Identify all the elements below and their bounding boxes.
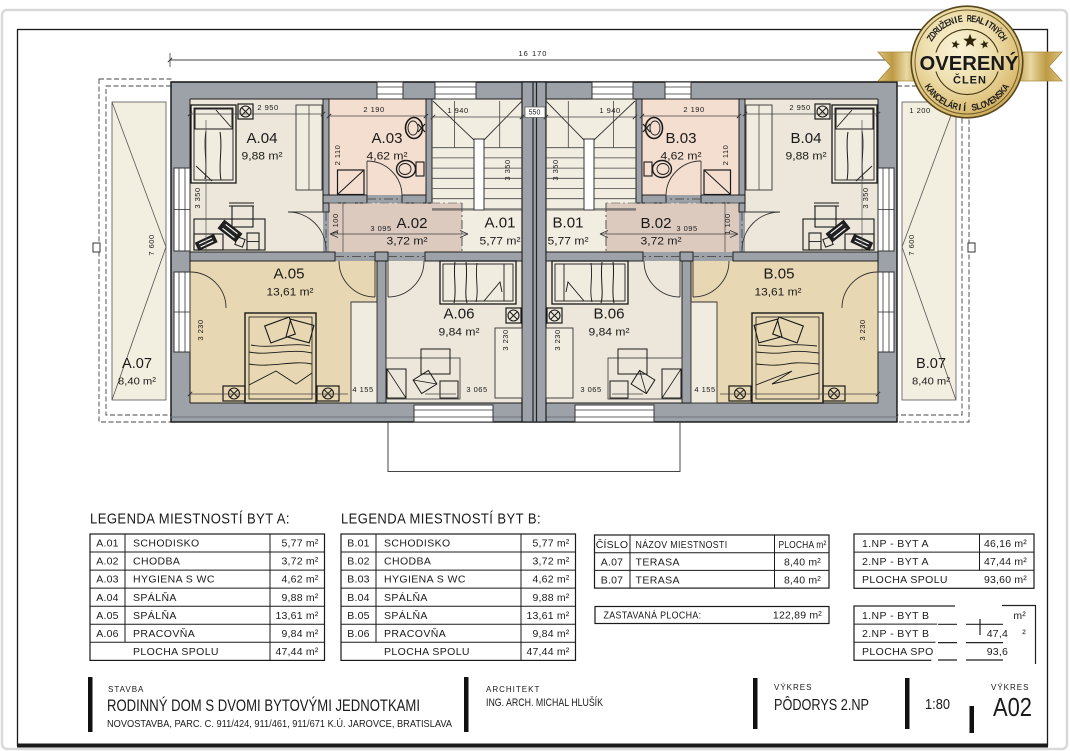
svg-text:9,84 m²: 9,84 m² bbox=[439, 327, 480, 339]
svg-text:HYGIENA S WC: HYGIENA S WC bbox=[384, 574, 466, 586]
svg-text:PRACOVŇA: PRACOVŇA bbox=[384, 627, 446, 640]
svg-text:2 190: 2 190 bbox=[683, 105, 704, 114]
svg-text:SPÁLŇA: SPÁLŇA bbox=[133, 609, 177, 622]
svg-text:9,88 m²: 9,88 m² bbox=[282, 592, 319, 604]
svg-text:47,44 m²: 47,44 m² bbox=[275, 646, 318, 658]
svg-text:8,40 m²: 8,40 m² bbox=[118, 376, 157, 388]
svg-text:A.05: A.05 bbox=[274, 266, 305, 283]
svg-text:A.03: A.03 bbox=[96, 574, 118, 586]
svg-text:TERASA: TERASA bbox=[636, 557, 680, 569]
svg-text:9,88 m²: 9,88 m² bbox=[786, 151, 827, 163]
svg-text:SPÁLŇA: SPÁLŇA bbox=[133, 591, 177, 604]
svg-text:122,89 m²: 122,89 m² bbox=[773, 610, 822, 622]
svg-text:B.04: B.04 bbox=[791, 130, 822, 147]
svg-text:3 065: 3 065 bbox=[580, 385, 601, 394]
svg-text:3,72 m²: 3,72 m² bbox=[282, 556, 319, 568]
svg-text:3,72 m²: 3,72 m² bbox=[533, 556, 570, 568]
svg-text:B.01: B.01 bbox=[347, 538, 369, 550]
svg-text:B.07: B.07 bbox=[601, 574, 623, 586]
svg-text:B.06: B.06 bbox=[594, 306, 625, 323]
svg-text:16 170: 16 170 bbox=[519, 49, 548, 58]
svg-text:RODINNÝ DOM S DVOMI BYTOVÝMI J: RODINNÝ DOM S DVOMI BYTOVÝMI JEDNOTKAMI bbox=[107, 696, 420, 715]
svg-text:NOVOSTAVBA, PARC. C. 911/424,: NOVOSTAVBA, PARC. C. 911/424, 911/461, 9… bbox=[107, 717, 452, 730]
svg-text:PLOCHA SPOLU: PLOCHA SPOLU bbox=[862, 574, 948, 586]
svg-text:PLOCHA m²: PLOCHA m² bbox=[779, 539, 827, 551]
svg-text:B.04: B.04 bbox=[347, 592, 369, 604]
svg-text:A.07: A.07 bbox=[122, 356, 152, 372]
svg-text:3 230: 3 230 bbox=[196, 319, 205, 340]
svg-text:3 230: 3 230 bbox=[501, 329, 510, 350]
svg-text:A.06: A.06 bbox=[96, 628, 118, 640]
svg-text:8,40 m²: 8,40 m² bbox=[912, 376, 951, 388]
svg-text:A.06: A.06 bbox=[444, 306, 475, 323]
svg-text:5,77 m²: 5,77 m² bbox=[282, 538, 319, 550]
svg-text:LEGENDA MIESTNOSTÍ BYT A:: LEGENDA MIESTNOSTÍ BYT A: bbox=[90, 511, 290, 528]
svg-text:3 350: 3 350 bbox=[861, 187, 870, 208]
svg-text:A.03: A.03 bbox=[372, 130, 403, 147]
svg-text:3 230: 3 230 bbox=[553, 329, 562, 350]
svg-text:2 110: 2 110 bbox=[333, 145, 342, 166]
svg-text:CHODBA: CHODBA bbox=[384, 556, 431, 568]
svg-text:ING. ARCH. MICHAL HLUŠÍK: ING. ARCH. MICHAL HLUŠÍK bbox=[486, 696, 604, 709]
svg-text:A.01: A.01 bbox=[485, 215, 516, 232]
svg-text:1 100: 1 100 bbox=[331, 213, 340, 234]
svg-text:93,6: 93,6 bbox=[987, 646, 1008, 658]
svg-text:HYGIENA S WC: HYGIENA S WC bbox=[133, 574, 215, 586]
svg-text:8,40 m²: 8,40 m² bbox=[784, 557, 821, 569]
svg-text:PLOCHA SPOLU: PLOCHA SPOLU bbox=[384, 646, 470, 658]
svg-text:A.07: A.07 bbox=[601, 557, 623, 569]
svg-text:A.05: A.05 bbox=[96, 610, 118, 622]
svg-text:4,62 m²: 4,62 m² bbox=[661, 151, 702, 163]
svg-text:47,4: 47,4 bbox=[987, 628, 1008, 640]
svg-text:B.05: B.05 bbox=[347, 610, 369, 622]
svg-text:13,61 m²: 13,61 m² bbox=[526, 610, 569, 622]
svg-text:7 600: 7 600 bbox=[147, 234, 156, 255]
svg-text:A.04: A.04 bbox=[247, 130, 278, 147]
svg-text:3,72 m²: 3,72 m² bbox=[641, 236, 682, 248]
svg-text:ZASTAVANÁ PLOCHA:: ZASTAVANÁ PLOCHA: bbox=[604, 609, 702, 622]
svg-text:3 095: 3 095 bbox=[676, 224, 697, 233]
svg-text:550: 550 bbox=[529, 110, 541, 117]
svg-text:3 065: 3 065 bbox=[466, 385, 487, 394]
svg-text:A.02: A.02 bbox=[397, 215, 428, 232]
svg-text:B.03: B.03 bbox=[666, 130, 697, 147]
svg-text:5,77 m²: 5,77 m² bbox=[548, 236, 589, 248]
svg-text:A.02: A.02 bbox=[96, 556, 118, 568]
svg-text:2 950: 2 950 bbox=[257, 103, 278, 112]
svg-text:CHODBA: CHODBA bbox=[133, 556, 180, 568]
svg-text:3 350: 3 350 bbox=[503, 159, 512, 180]
svg-text:VÝKRES: VÝKRES bbox=[774, 683, 812, 692]
svg-text:13,61 m²: 13,61 m² bbox=[755, 287, 802, 299]
svg-text:TERASA: TERASA bbox=[636, 574, 680, 586]
svg-text:47,44 m²: 47,44 m² bbox=[984, 556, 1027, 568]
svg-text:PRACOVŇA: PRACOVŇA bbox=[133, 627, 195, 640]
svg-text:A.01: A.01 bbox=[96, 538, 118, 550]
svg-text:SPÁLŇA: SPÁLŇA bbox=[384, 609, 428, 622]
svg-text:9,88 m²: 9,88 m² bbox=[533, 592, 570, 604]
svg-text:STAVBA: STAVBA bbox=[108, 685, 144, 694]
svg-text:9,88 m²: 9,88 m² bbox=[242, 151, 283, 163]
svg-text:²: ² bbox=[1022, 628, 1026, 640]
svg-text:4,62 m²: 4,62 m² bbox=[282, 574, 319, 586]
svg-text:2.NP - BYT A: 2.NP - BYT A bbox=[862, 556, 929, 568]
svg-text:4,62 m²: 4,62 m² bbox=[533, 574, 570, 586]
svg-text:LEGENDA MIESTNOSTÍ BYT B:: LEGENDA MIESTNOSTÍ BYT B: bbox=[341, 511, 541, 528]
svg-text:ARCHITEKT: ARCHITEKT bbox=[486, 685, 540, 694]
svg-text:5,77 m²: 5,77 m² bbox=[480, 236, 521, 248]
svg-text:B.05: B.05 bbox=[764, 266, 795, 283]
svg-text:13,61 m²: 13,61 m² bbox=[275, 610, 318, 622]
svg-text:2.NP - BYT B: 2.NP - BYT B bbox=[862, 628, 929, 640]
svg-text:2 110: 2 110 bbox=[721, 145, 730, 166]
svg-text:B.02: B.02 bbox=[641, 215, 672, 232]
svg-text:9,84 m²: 9,84 m² bbox=[533, 628, 570, 640]
svg-text:NÁZOV MIESTNOSTI: NÁZOV MIESTNOSTI bbox=[636, 538, 728, 551]
svg-text:B.03: B.03 bbox=[347, 574, 369, 586]
svg-text:SPÁLŇA: SPÁLŇA bbox=[384, 591, 428, 604]
svg-text:m²: m² bbox=[1013, 610, 1026, 622]
svg-text:2 950: 2 950 bbox=[789, 103, 810, 112]
svg-text:SCHODISKO: SCHODISKO bbox=[133, 538, 200, 550]
svg-text:2 190: 2 190 bbox=[363, 105, 384, 114]
svg-text:VÝKRES: VÝKRES bbox=[991, 683, 1029, 692]
svg-text:1 100: 1 100 bbox=[723, 213, 732, 234]
svg-text:1 200: 1 200 bbox=[909, 106, 930, 115]
svg-text:A02: A02 bbox=[993, 692, 1032, 722]
svg-text:ČLEN: ČLEN bbox=[953, 74, 987, 87]
svg-text:PLOCHA SPOLU: PLOCHA SPOLU bbox=[133, 646, 219, 658]
svg-text:3 230: 3 230 bbox=[858, 319, 867, 340]
svg-text:B.01: B.01 bbox=[553, 215, 584, 232]
svg-text:4,62 m²: 4,62 m² bbox=[367, 151, 408, 163]
svg-text:3 350: 3 350 bbox=[193, 187, 202, 208]
svg-text:4 155: 4 155 bbox=[694, 385, 715, 394]
svg-text:93,60 m²: 93,60 m² bbox=[984, 574, 1027, 586]
svg-text:1.NP - BYT A: 1.NP - BYT A bbox=[862, 538, 929, 550]
svg-text:B.06: B.06 bbox=[347, 628, 369, 640]
svg-text:OVERENÝ: OVERENÝ bbox=[920, 51, 1020, 75]
svg-text:1.NP - BYT B: 1.NP - BYT B bbox=[862, 610, 929, 622]
svg-text:7 600: 7 600 bbox=[907, 234, 916, 255]
svg-text:3,72 m²: 3,72 m² bbox=[387, 236, 428, 248]
svg-text:A.04: A.04 bbox=[96, 592, 118, 604]
svg-text:3 095: 3 095 bbox=[370, 224, 391, 233]
svg-text:PÔDORYS 2.NP: PÔDORYS 2.NP bbox=[774, 695, 869, 714]
svg-text:B.07: B.07 bbox=[916, 356, 946, 372]
svg-text:47,44 m²: 47,44 m² bbox=[526, 646, 569, 658]
svg-text:1:80: 1:80 bbox=[925, 697, 950, 713]
svg-text:9,84 m²: 9,84 m² bbox=[282, 628, 319, 640]
svg-text:8,40 m²: 8,40 m² bbox=[784, 574, 821, 586]
svg-text:1 940: 1 940 bbox=[447, 106, 468, 115]
svg-text:ČÍSLO: ČÍSLO bbox=[596, 538, 629, 551]
svg-text:B.02: B.02 bbox=[347, 556, 369, 568]
svg-text:SCHODISKO: SCHODISKO bbox=[384, 538, 451, 550]
svg-text:5,77 m²: 5,77 m² bbox=[533, 538, 570, 550]
svg-text:1 940: 1 940 bbox=[599, 106, 620, 115]
svg-text:46,16 m²: 46,16 m² bbox=[984, 538, 1027, 550]
svg-text:4 155: 4 155 bbox=[352, 385, 373, 394]
svg-text:13,61 m²: 13,61 m² bbox=[267, 287, 314, 299]
svg-text:9,84 m²: 9,84 m² bbox=[589, 327, 630, 339]
svg-text:3 350: 3 350 bbox=[551, 159, 560, 180]
